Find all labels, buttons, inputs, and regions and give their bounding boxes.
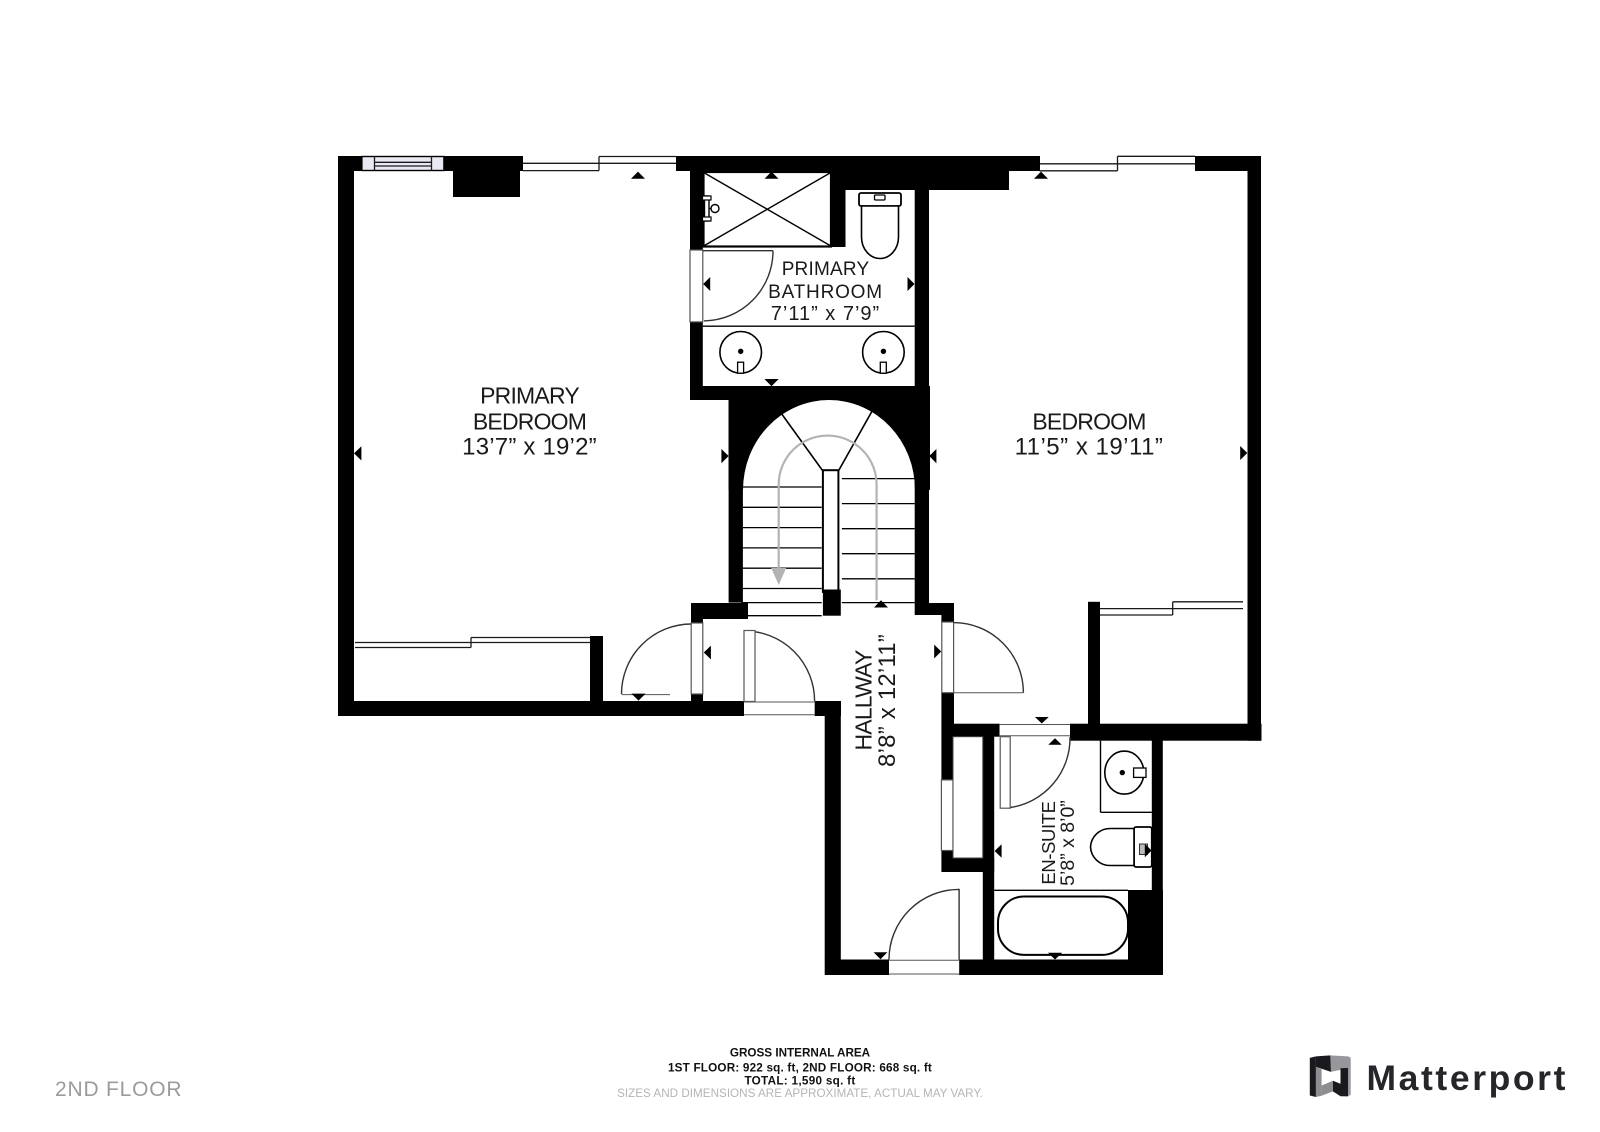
svg-text:8’8” x 12’11”: 8’8” x 12’11” <box>874 634 901 767</box>
svg-text:BEDROOM: BEDROOM <box>473 409 586 435</box>
svg-text:5’8” x 8’0”: 5’8” x 8’0” <box>1057 800 1079 886</box>
svg-text:1ST FLOOR: 922 sq. ft, 2ND FLO: 1ST FLOOR: 922 sq. ft, 2ND FLOOR: 668 sq… <box>668 1062 932 1075</box>
svg-text:7’11” x 7’9”: 7’11” x 7’9” <box>771 303 880 325</box>
svg-text:BEDROOM: BEDROOM <box>1032 409 1145 435</box>
svg-text:EN-SUITE: EN-SUITE <box>1038 801 1059 884</box>
svg-text:2ND FLOOR: 2ND FLOOR <box>55 1078 182 1101</box>
svg-text:PRIMARY: PRIMARY <box>782 259 870 280</box>
svg-text:HALLWAY: HALLWAY <box>851 650 877 751</box>
svg-text:TOTAL: 1,590 sq. ft: TOTAL: 1,590 sq. ft <box>744 1074 855 1087</box>
svg-text:11’5” x 19’11”: 11’5” x 19’11” <box>1015 433 1164 460</box>
svg-text:SIZES AND DIMENSIONS ARE APPRO: SIZES AND DIMENSIONS ARE APPROXIMATE, AC… <box>617 1087 983 1100</box>
svg-text:13’7” x 19’2”: 13’7” x 19’2” <box>462 433 597 460</box>
svg-text:GROSS INTERNAL AREA: GROSS INTERNAL AREA <box>730 1047 871 1060</box>
svg-text:BATHROOM: BATHROOM <box>768 282 883 303</box>
svg-text:PRIMARY: PRIMARY <box>480 383 579 409</box>
svg-text:Matterport: Matterport <box>1367 1058 1569 1098</box>
